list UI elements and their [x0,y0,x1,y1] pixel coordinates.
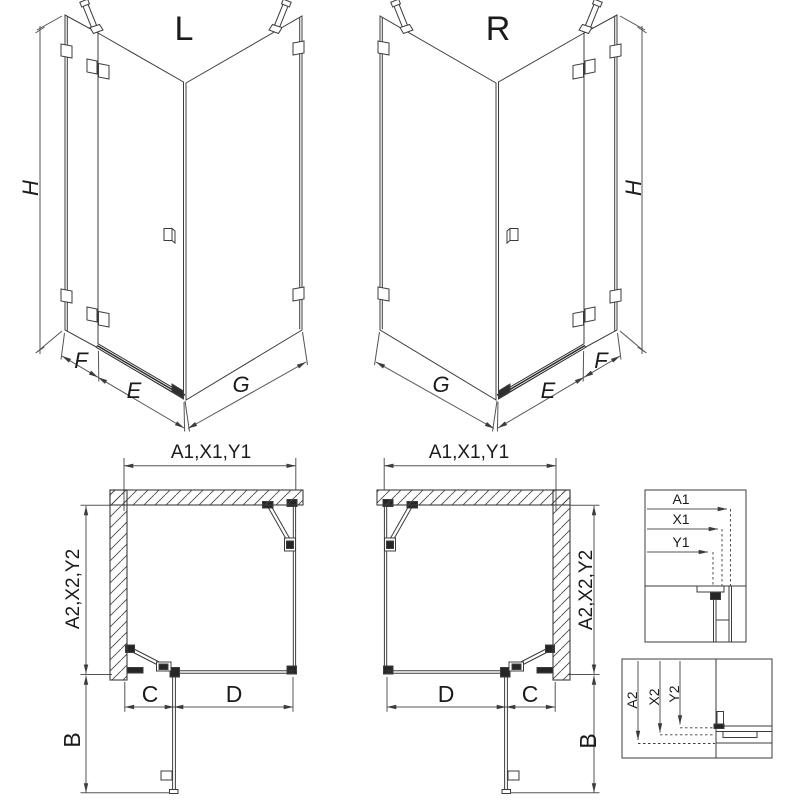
detail-a1: A1 [672,491,689,507]
plan-right-top-dim: A1,X1,Y1 [429,442,509,463]
detail-a2: A2 [624,691,640,708]
diagram-svg: L H F E G R H F E G A1,X1,Y1 A2,X2,Y2 C … [0,0,800,800]
detail-y1: Y1 [672,534,689,550]
dim-label-e-right: E [541,378,556,403]
dim-label-h-left: H [18,180,43,196]
view-title-left: L [175,10,194,48]
plan-left-b: B [59,732,85,747]
plan-right-c: C [522,681,539,707]
dim-label-g-right: G [432,372,449,397]
shower-enclosure-technical-drawing: L H F E G R H F E G A1,X1,Y1 A2,X2,Y2 C … [0,0,800,800]
detail-x2: X2 [646,688,662,705]
plan-left-d: D [226,681,243,707]
view-title-right: R [486,10,511,48]
dim-label-g-left: G [232,372,249,397]
detail-y2: Y2 [666,685,682,702]
dim-label-f-right: F [594,348,609,373]
detail-x1: X1 [672,511,689,527]
plan-left-top-dim: A1,X1,Y1 [171,442,251,463]
plan-right-b: B [575,733,601,748]
plan-right-side-dim: A2,X2,Y2 [576,550,597,630]
plan-left-side-dim: A2,X2,Y2 [63,549,84,629]
detail-box-depth [622,659,772,758]
plan-right-d: D [438,681,455,707]
dim-label-h-right: H [621,180,646,196]
plan-left-c: C [142,681,159,707]
dim-label-e-left: E [127,378,142,403]
detail-box-width [645,490,746,642]
dim-label-f-left: F [74,348,89,373]
